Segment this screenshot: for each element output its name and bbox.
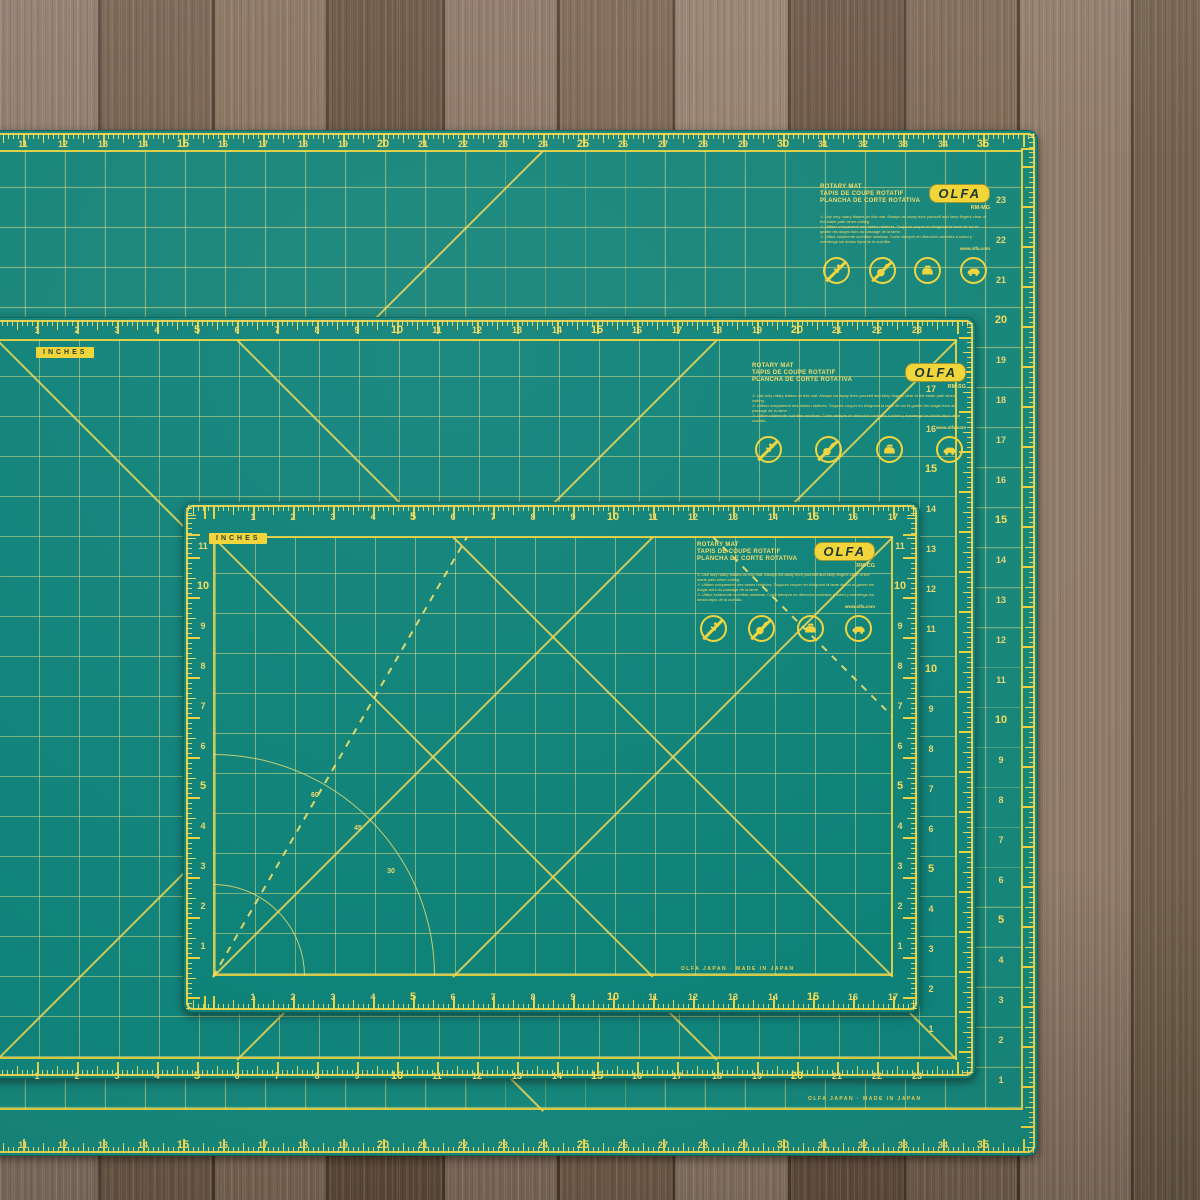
ruler-number: 21 bbox=[991, 275, 1011, 285]
ruler-number: 2 bbox=[283, 992, 303, 1002]
care-icon-row bbox=[697, 615, 875, 642]
no-hot-car-icon bbox=[960, 257, 987, 284]
label-header: ROTARY MATTAPIS DE COUPE ROTATIFPLANCHA … bbox=[820, 184, 990, 211]
ruler-number: 12 bbox=[467, 1071, 487, 1079]
ruler-top bbox=[0, 133, 1034, 148]
label-title-line: TAPIS DE COUPE ROTATIF bbox=[752, 370, 852, 377]
olfa-logo: OLFA bbox=[905, 363, 966, 382]
ruler-number: 23 bbox=[907, 1071, 927, 1079]
ruler-number: 3 bbox=[991, 995, 1011, 1005]
ruler-number: 4 bbox=[363, 992, 383, 1002]
no-rotary-tool-icon bbox=[815, 436, 842, 463]
ruler-number: 11 bbox=[890, 541, 910, 551]
ruler-number: 15 bbox=[173, 1140, 193, 1150]
website-text: www.olfa.com bbox=[752, 425, 966, 430]
ruler-number: 12 bbox=[53, 1140, 73, 1150]
warning-text: ⚠ Use only rotary blades on this mat. Al… bbox=[820, 214, 990, 244]
ruler-number: 1 bbox=[991, 1075, 1011, 1085]
ruler-number: 7 bbox=[921, 784, 941, 794]
ruler-number: 1 bbox=[27, 1071, 47, 1079]
ruler-number: 9 bbox=[347, 1071, 367, 1079]
ruler-number: 13 bbox=[723, 992, 743, 1002]
ruler-number: 3 bbox=[107, 325, 127, 335]
ruler-number: 18 bbox=[991, 395, 1011, 405]
ruler-number: 31 bbox=[813, 139, 833, 149]
ruler-number: 31 bbox=[813, 1140, 833, 1150]
ruler-number: 11 bbox=[643, 992, 663, 1002]
ruler-number: 4 bbox=[890, 821, 910, 831]
ruler-number: 10 bbox=[387, 325, 407, 335]
ruler-number: 20 bbox=[787, 1071, 807, 1079]
brand-area: OLFARM-SG bbox=[905, 363, 966, 390]
ruler-number: 10 bbox=[603, 512, 623, 522]
ruler-number: 14 bbox=[547, 325, 567, 335]
ruler-number: 8 bbox=[523, 992, 543, 1002]
printed-label-large: ROTARY MATTAPIS DE COUPE ROTATIFPLANCHA … bbox=[820, 184, 990, 304]
ruler-number: 5 bbox=[187, 325, 207, 335]
ruler-number: 8 bbox=[307, 1071, 327, 1079]
warning-text: ⚠ Use only rotary blades on this mat. Al… bbox=[752, 393, 966, 423]
ruler-number: 21 bbox=[827, 325, 847, 335]
ruler-number: 22 bbox=[867, 325, 887, 335]
care-icon-row bbox=[752, 436, 966, 463]
ruler-number: 3 bbox=[323, 992, 343, 1002]
no-hot-car-icon bbox=[936, 436, 963, 463]
ruler-number: 30 bbox=[773, 139, 793, 149]
ruler-number: 12 bbox=[53, 139, 73, 149]
ruler-number: 5 bbox=[890, 781, 910, 791]
ruler-number: 17 bbox=[253, 1140, 273, 1150]
ruler-number: 2 bbox=[991, 1035, 1011, 1045]
ruler-number: 16 bbox=[843, 992, 863, 1002]
ruler-number: 13 bbox=[507, 325, 527, 335]
ruler-number: 21 bbox=[413, 1140, 433, 1150]
ruler-number: 15 bbox=[803, 992, 823, 1002]
ruler-number: 7 bbox=[193, 701, 213, 711]
ruler-number: 14 bbox=[133, 139, 153, 149]
ruler-number: 12 bbox=[467, 325, 487, 335]
ruler-number: 21 bbox=[413, 139, 433, 149]
ruler-number: 14 bbox=[921, 504, 941, 514]
ruler-number: 34 bbox=[933, 139, 953, 149]
warning-text: ⚠ Use only rotary blades on this mat. Al… bbox=[697, 572, 875, 602]
ruler-number: 23 bbox=[991, 195, 1011, 205]
ruler-number: 9 bbox=[991, 755, 1011, 765]
ruler-number: 10 bbox=[193, 581, 213, 591]
label-title-line: ROTARY MAT bbox=[697, 542, 797, 549]
ruler-number: 9 bbox=[890, 621, 910, 631]
ruler-number: 13 bbox=[93, 139, 113, 149]
ruler-number: 4 bbox=[147, 325, 167, 335]
ruler-number: 2 bbox=[67, 1071, 87, 1079]
ruler-number: 28 bbox=[693, 139, 713, 149]
ruler-number: 14 bbox=[991, 555, 1011, 565]
ruler-number: 17 bbox=[883, 992, 903, 1002]
warning-paragraph: ⚠ Utiliser uniquement des lames rotative… bbox=[697, 582, 875, 592]
ruler-number: 6 bbox=[443, 992, 463, 1002]
ruler-number: 7 bbox=[890, 701, 910, 711]
ruler-number: 12 bbox=[921, 584, 941, 594]
ruler-number: 16 bbox=[213, 139, 233, 149]
ruler-number: 2 bbox=[283, 512, 303, 522]
ruler-number: 7 bbox=[483, 992, 503, 1002]
label-title-line: PLANCHA DE CORTE ROTATIVA bbox=[752, 377, 852, 384]
ruler-number: 7 bbox=[483, 512, 503, 522]
ruler-number: 5 bbox=[921, 864, 941, 874]
warning-paragraph: ⚠ Utilice solamente cuchillas rotativas.… bbox=[752, 413, 966, 423]
no-pins-icon bbox=[823, 257, 850, 284]
ruler-number: 11 bbox=[427, 1071, 447, 1079]
ruler-number: 5 bbox=[187, 1071, 207, 1079]
ruler-number: 20 bbox=[787, 325, 807, 335]
ruler-number: 15 bbox=[173, 139, 193, 149]
ruler-number: 14 bbox=[133, 1140, 153, 1150]
ruler-number: 9 bbox=[563, 512, 583, 522]
ruler-number: 5 bbox=[403, 512, 423, 522]
ruler-number: 11 bbox=[921, 624, 941, 634]
no-iron-icon bbox=[876, 436, 903, 463]
ruler-number: 1 bbox=[27, 325, 47, 335]
ruler-number: 9 bbox=[921, 704, 941, 714]
ruler-number: 6 bbox=[227, 325, 247, 335]
cutting-mat-small: 6045301122334455667788991010111112121313… bbox=[183, 502, 920, 1013]
ruler-number: 1 bbox=[193, 941, 213, 951]
ruler-number: 6 bbox=[443, 512, 463, 522]
ruler-number: 20 bbox=[373, 1140, 393, 1150]
ruler-number: 5 bbox=[193, 781, 213, 791]
ruler-number: 17 bbox=[991, 435, 1011, 445]
brand-area: OLFARM-MG bbox=[929, 184, 990, 211]
ruler-number: 28 bbox=[693, 1140, 713, 1150]
ruler-number: 24 bbox=[533, 139, 553, 149]
ruler-number: 16 bbox=[213, 1140, 233, 1150]
photo-cutting-mats-on-table: 1122334455667788991010111112121313141415… bbox=[0, 0, 1200, 1200]
ruler-number: 19 bbox=[333, 139, 353, 149]
ruler-number: 3 bbox=[323, 512, 343, 522]
ruler-number: 6 bbox=[991, 875, 1011, 885]
ruler-number: 16 bbox=[627, 325, 647, 335]
ruler-right bbox=[1020, 134, 1035, 1152]
model-code: RM-MG bbox=[929, 205, 990, 211]
no-iron-icon bbox=[914, 257, 941, 284]
ruler-number: 6 bbox=[227, 1071, 247, 1079]
brand-area: OLFARM-CG bbox=[814, 542, 875, 569]
ruler-number: 4 bbox=[991, 955, 1011, 965]
ruler-number: 3 bbox=[921, 944, 941, 954]
warning-paragraph: ⚠ Utilice solamente cuchillas rotativas.… bbox=[697, 592, 875, 602]
ruler-number: 13 bbox=[507, 1071, 527, 1079]
olfa-logo: OLFA bbox=[929, 184, 990, 203]
ruler-number: 3 bbox=[890, 861, 910, 871]
warning-paragraph: ⚠ Utiliser uniquement des lames rotative… bbox=[752, 403, 966, 413]
ruler-number: 16 bbox=[843, 512, 863, 522]
no-iron-icon bbox=[797, 615, 824, 642]
inches-tag: INCHES bbox=[36, 347, 94, 358]
ruler-number: 15 bbox=[587, 325, 607, 335]
ruler-number: 10 bbox=[991, 715, 1011, 725]
ruler-number: 25 bbox=[573, 1140, 593, 1150]
label-title-line: PLANCHA DE CORTE ROTATIVA bbox=[820, 198, 920, 205]
ruler-number: 8 bbox=[193, 661, 213, 671]
ruler-number: 9 bbox=[347, 325, 367, 335]
ruler-number: 25 bbox=[573, 139, 593, 149]
ruler-number: 6 bbox=[921, 824, 941, 834]
ruler-number: 15 bbox=[587, 1071, 607, 1079]
warning-paragraph: ⚠ Utiliser uniquement des lames rotative… bbox=[820, 224, 990, 234]
ruler-number: 10 bbox=[921, 664, 941, 674]
label-title-lines: ROTARY MATTAPIS DE COUPE ROTATIFPLANCHA … bbox=[820, 184, 920, 205]
ruler-number: 12 bbox=[683, 512, 703, 522]
warning-paragraph: ⚠ Use only rotary blades on this mat. Al… bbox=[752, 393, 966, 403]
ruler-number: 20 bbox=[991, 315, 1011, 325]
ruler-number: 8 bbox=[523, 512, 543, 522]
ruler-number: 4 bbox=[363, 512, 383, 522]
label-title-lines: ROTARY MATTAPIS DE COUPE ROTATIFPLANCHA … bbox=[752, 363, 852, 384]
ruler-number: 22 bbox=[867, 1071, 887, 1079]
olfa-logo: OLFA bbox=[814, 542, 875, 561]
ruler-number: 6 bbox=[890, 741, 910, 751]
tick-layer bbox=[1021, 134, 1035, 1152]
ruler-number: 19 bbox=[747, 325, 767, 335]
ruler-number: 1 bbox=[921, 1024, 941, 1034]
ruler-number: 23 bbox=[907, 325, 927, 335]
ruler-number: 30 bbox=[773, 1140, 793, 1150]
ruler-number: 8 bbox=[890, 661, 910, 671]
ruler-number: 32 bbox=[853, 1140, 873, 1150]
ruler-number: 32 bbox=[853, 139, 873, 149]
ruler-number: 17 bbox=[667, 1071, 687, 1079]
ruler-number: 19 bbox=[991, 355, 1011, 365]
warning-paragraph: ⚠ Use only rotary blades on this mat. Al… bbox=[697, 572, 875, 582]
ruler-number: 19 bbox=[747, 1071, 767, 1079]
ruler-number: 13 bbox=[921, 544, 941, 554]
tick-layer bbox=[0, 133, 1034, 147]
printed-label-middle: ROTARY MATTAPIS DE COUPE ROTATIFPLANCHA … bbox=[752, 363, 966, 495]
ruler-number: 3 bbox=[107, 1071, 127, 1079]
warning-paragraph: ⚠ Use only rotary blades on this mat. Al… bbox=[820, 214, 990, 224]
ruler-number: 33 bbox=[893, 139, 913, 149]
ruler-number: 29 bbox=[733, 139, 753, 149]
ruler-number: 20 bbox=[373, 139, 393, 149]
made-in-japan-text: OLFA JAPAN · MADE IN JAPAN bbox=[681, 966, 795, 972]
ruler-number: 16 bbox=[627, 1071, 647, 1079]
ruler-number: 27 bbox=[653, 1140, 673, 1150]
ruler-number: 14 bbox=[547, 1071, 567, 1079]
ruler-number: 4 bbox=[921, 904, 941, 914]
ruler-number: 8 bbox=[991, 795, 1011, 805]
ruler-number: 1 bbox=[243, 512, 263, 522]
inches-tag: INCHES bbox=[209, 533, 267, 544]
ruler-number: 4 bbox=[147, 1071, 167, 1079]
ruler-number: 33 bbox=[893, 1140, 913, 1150]
ruler-number: 22 bbox=[991, 235, 1011, 245]
ruler-number: 3 bbox=[193, 861, 213, 871]
ruler-number: 18 bbox=[293, 139, 313, 149]
ruler-number: 1 bbox=[243, 992, 263, 1002]
ruler-number: 22 bbox=[453, 1140, 473, 1150]
model-code: RM-SG bbox=[905, 384, 966, 390]
ruler-number: 12 bbox=[683, 992, 703, 1002]
ruler-number: 11 bbox=[13, 1140, 33, 1150]
ruler-number: 13 bbox=[991, 595, 1011, 605]
ruler-number: 24 bbox=[533, 1140, 553, 1150]
ruler-number: 13 bbox=[93, 1140, 113, 1150]
label-title-line: PLANCHA DE CORTE ROTATIVA bbox=[697, 556, 797, 563]
label-title-line: ROTARY MAT bbox=[752, 363, 852, 370]
ruler-number: 2 bbox=[890, 901, 910, 911]
ruler-number: 5 bbox=[403, 992, 423, 1002]
ruler-number: 23 bbox=[493, 139, 513, 149]
ruler-number: 21 bbox=[827, 1071, 847, 1079]
ruler-number: 35 bbox=[973, 139, 993, 149]
no-rotary-tool-icon bbox=[748, 615, 775, 642]
ruler-number: 8 bbox=[307, 325, 327, 335]
label-header: ROTARY MATTAPIS DE COUPE ROTATIFPLANCHA … bbox=[752, 363, 966, 390]
ruler-number: 11 bbox=[643, 512, 663, 522]
ruler-number: 23 bbox=[493, 1140, 513, 1150]
ruler-bottom bbox=[0, 1138, 1034, 1153]
ruler-number: 10 bbox=[890, 581, 910, 591]
tick-layer bbox=[0, 1139, 1034, 1153]
ruler-number: 2 bbox=[921, 984, 941, 994]
ruler-number: 1 bbox=[890, 941, 910, 951]
ruler-number: 19 bbox=[333, 1140, 353, 1150]
ruler-number: 27 bbox=[653, 139, 673, 149]
website-text: www.olfa.com bbox=[820, 246, 990, 251]
care-icon-row bbox=[820, 257, 990, 284]
ruler-number: 2 bbox=[67, 325, 87, 335]
ruler-number: 16 bbox=[991, 475, 1011, 485]
ruler-number: 26 bbox=[613, 1140, 633, 1150]
ruler-number: 17 bbox=[883, 512, 903, 522]
ruler-number: 14 bbox=[763, 992, 783, 1002]
ruler-number: 17 bbox=[667, 325, 687, 335]
ruler-number: 29 bbox=[733, 1140, 753, 1150]
ruler-number: 15 bbox=[803, 512, 823, 522]
no-rotary-tool-icon bbox=[869, 257, 896, 284]
ruler-number: 34 bbox=[933, 1140, 953, 1150]
no-hot-car-icon bbox=[845, 615, 872, 642]
warning-paragraph: ⚠ Utilice solamente cuchillas rotativas.… bbox=[820, 234, 990, 244]
ruler-number: 10 bbox=[387, 1071, 407, 1079]
ruler-number: 18 bbox=[707, 1071, 727, 1079]
made-in-japan-text: OLFA JAPAN · MADE IN JAPAN bbox=[808, 1096, 922, 1102]
ruler-number: 11 bbox=[991, 675, 1011, 685]
ruler-number: 2 bbox=[193, 901, 213, 911]
ruler-number: 22 bbox=[453, 139, 473, 149]
ruler-number: 6 bbox=[193, 741, 213, 751]
label-title-lines: ROTARY MATTAPIS DE COUPE ROTATIFPLANCHA … bbox=[697, 542, 797, 563]
ruler-number: 14 bbox=[763, 512, 783, 522]
ruler-number: 18 bbox=[293, 1140, 313, 1150]
ruler-number: 7 bbox=[991, 835, 1011, 845]
ruler-number: 12 bbox=[991, 635, 1011, 645]
ruler-number: 8 bbox=[921, 744, 941, 754]
ruler-number: 11 bbox=[13, 139, 33, 149]
label-title-line: TAPIS DE COUPE ROTATIF bbox=[820, 191, 920, 198]
ruler-number: 11 bbox=[427, 325, 447, 335]
ruler-number: 15 bbox=[991, 515, 1011, 525]
ruler-number: 7 bbox=[267, 1071, 287, 1079]
ruler-number: 9 bbox=[193, 621, 213, 631]
printed-label-small: ROTARY MATTAPIS DE COUPE ROTATIFPLANCHA … bbox=[697, 542, 875, 676]
ruler-number: 35 bbox=[973, 1140, 993, 1150]
ruler-number: 13 bbox=[723, 512, 743, 522]
model-code: RM-CG bbox=[814, 563, 875, 569]
ruler-number: 5 bbox=[991, 915, 1011, 925]
label-header: ROTARY MATTAPIS DE COUPE ROTATIFPLANCHA … bbox=[697, 542, 875, 569]
no-pins-icon bbox=[700, 615, 727, 642]
label-title-line: ROTARY MAT bbox=[820, 184, 920, 191]
ruler-number: 4 bbox=[193, 821, 213, 831]
ruler-number: 9 bbox=[563, 992, 583, 1002]
no-pins-icon bbox=[755, 436, 782, 463]
ruler-number: 18 bbox=[707, 325, 727, 335]
label-title-line: TAPIS DE COUPE ROTATIF bbox=[697, 549, 797, 556]
website-text: www.olfa.com bbox=[697, 604, 875, 609]
ruler-number: 7 bbox=[267, 325, 287, 335]
ruler-number: 17 bbox=[253, 139, 273, 149]
ruler-number: 26 bbox=[613, 139, 633, 149]
ruler-number: 10 bbox=[603, 992, 623, 1002]
